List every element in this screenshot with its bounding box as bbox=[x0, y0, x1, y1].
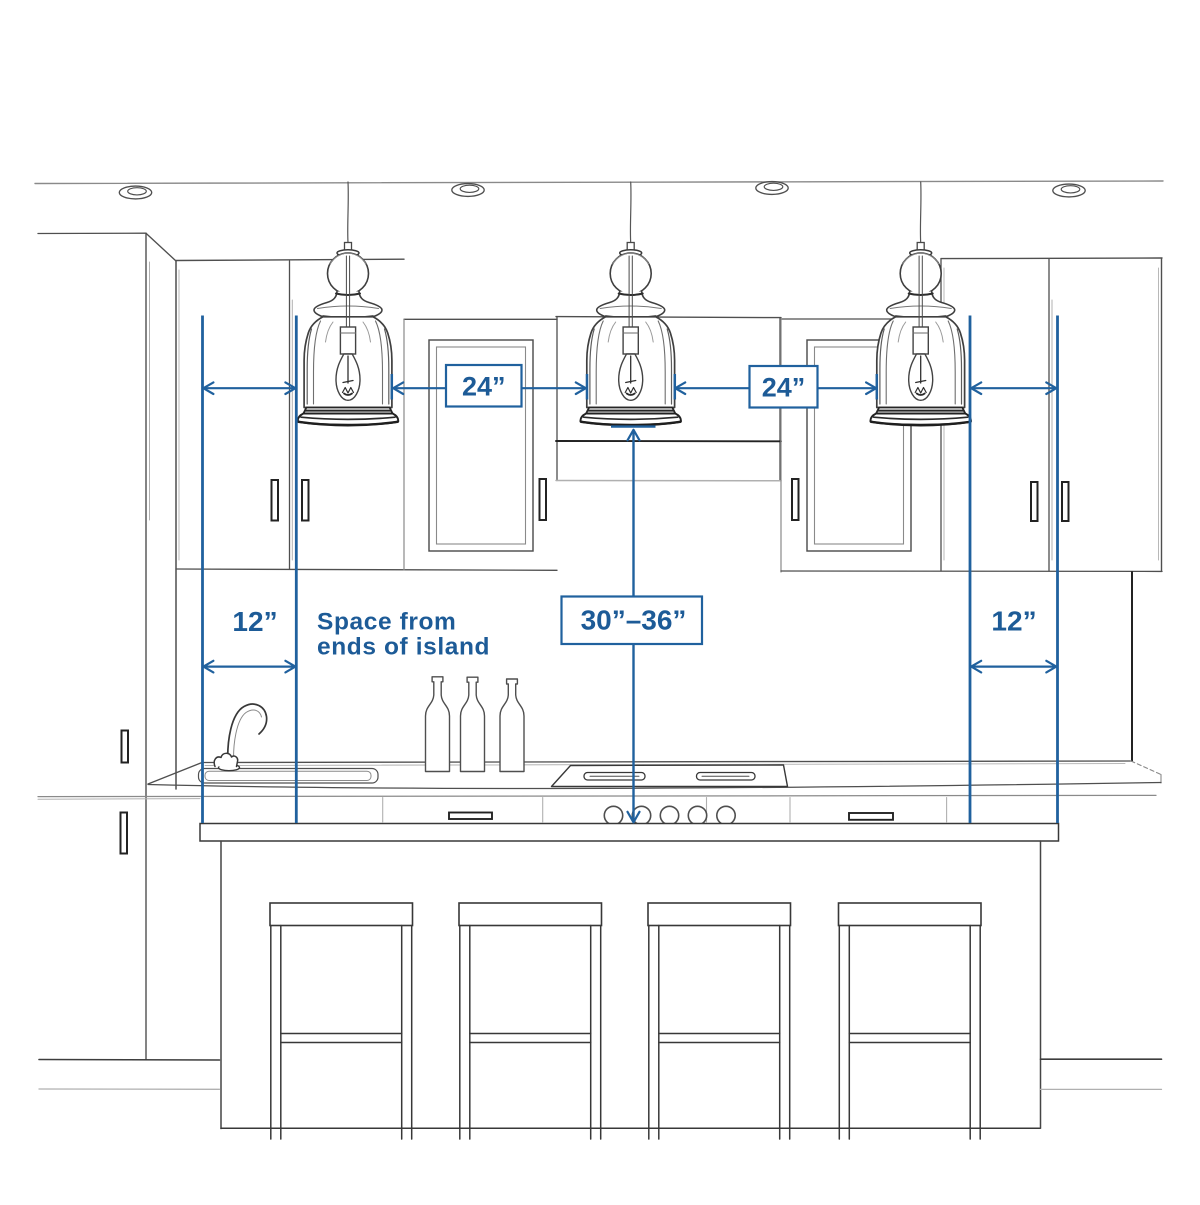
svg-text:Space from: Space from bbox=[317, 609, 456, 636]
svg-text:24”: 24” bbox=[462, 372, 506, 402]
svg-text:ends of island: ends of island bbox=[317, 634, 490, 661]
svg-text:30”–36”: 30”–36” bbox=[581, 605, 687, 636]
svg-text:24”: 24” bbox=[762, 373, 806, 403]
svg-text:12”: 12” bbox=[232, 606, 277, 637]
svg-text:12”: 12” bbox=[991, 606, 1036, 637]
